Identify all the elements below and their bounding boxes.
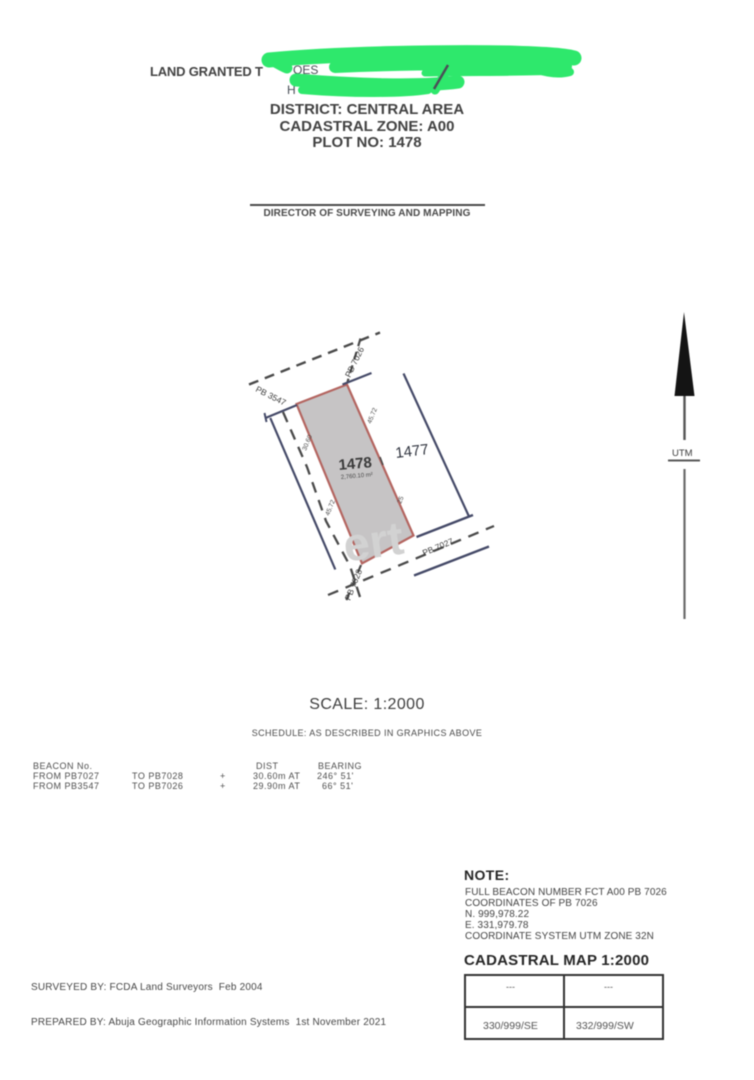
svg-text:PB 7027: PB 7027 (421, 536, 455, 558)
svg-text:45.72: 45.72 (366, 407, 379, 425)
svg-text:ert: ert (340, 511, 407, 572)
svg-text:UTM: UTM (672, 448, 693, 459)
svg-text:PB 3547: PB 3547 (254, 384, 288, 408)
svg-text:25: 25 (396, 495, 405, 505)
svg-text:PB 7026: PB 7026 (343, 345, 366, 379)
svg-text:1478: 1478 (338, 454, 373, 474)
svg-text:45.72: 45.72 (324, 499, 337, 517)
svg-text:1477: 1477 (394, 441, 429, 462)
